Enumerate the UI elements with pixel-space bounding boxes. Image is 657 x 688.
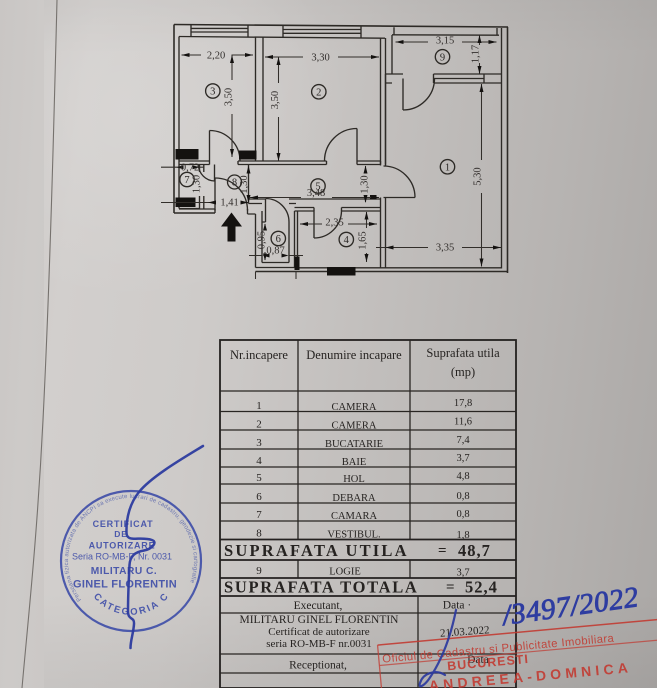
svg-text:1,30: 1,30 <box>360 175 371 193</box>
svg-text:1,17: 1,17 <box>471 45 482 63</box>
svg-text:0,72: 0,72 <box>181 163 199 174</box>
svg-text:HOL: HOL <box>343 474 365 485</box>
svg-text:2: 2 <box>316 87 321 98</box>
svg-text:17,8: 17,8 <box>454 398 472 409</box>
svg-text:0,8: 0,8 <box>456 491 469 502</box>
svg-text:SUPRAFATA UTILA: SUPRAFATA UTILA <box>224 541 409 560</box>
svg-text:4,8: 4,8 <box>456 471 469 482</box>
svg-text:Receptionat,: Receptionat, <box>289 660 347 672</box>
svg-text:0,87: 0,87 <box>266 246 284 257</box>
svg-text:9: 9 <box>256 565 262 577</box>
svg-text:Certificat de autorizare: Certificat de autorizare <box>268 626 370 638</box>
svg-text:LOGIE: LOGIE <box>329 567 361 578</box>
svg-text:seria RO-MB-F nr.0031: seria RO-MB-F nr.0031 <box>266 638 371 650</box>
svg-text:2,35: 2,35 <box>325 218 343 229</box>
svg-text:11,6: 11,6 <box>454 417 472 428</box>
svg-text:0,8: 0,8 <box>456 509 469 520</box>
svg-text:3,50: 3,50 <box>224 88 235 106</box>
svg-text:52,4: 52,4 <box>465 578 498 597</box>
svg-text:1,8: 1,8 <box>456 530 469 541</box>
svg-text:1,65: 1,65 <box>358 231 369 249</box>
svg-text:7: 7 <box>256 509 262 521</box>
svg-text:5: 5 <box>256 472 262 484</box>
svg-text:48,7: 48,7 <box>458 541 491 560</box>
svg-text:Seria RO-MB-F, Nr. 0031: Seria RO-MB-F, Nr. 0031 <box>72 552 172 562</box>
svg-text:Denumire incapare: Denumire incapare <box>306 348 402 362</box>
svg-text:=: = <box>446 580 455 596</box>
svg-text:MILITARU C.: MILITARU C. <box>91 566 157 577</box>
svg-text:CAMERA: CAMERA <box>332 421 377 432</box>
svg-text:6: 6 <box>276 234 281 245</box>
svg-text:7,4: 7,4 <box>456 435 470 446</box>
svg-text:5,30: 5,30 <box>473 167 484 185</box>
svg-text:3,7: 3,7 <box>456 453 469 464</box>
svg-text:=: = <box>438 543 447 559</box>
svg-text:1,30: 1,30 <box>192 175 203 193</box>
svg-text:3,48: 3,48 <box>307 188 325 199</box>
svg-text:4: 4 <box>256 455 262 467</box>
svg-text:Executant,: Executant, <box>294 600 343 612</box>
svg-text:3: 3 <box>256 437 262 449</box>
svg-text:/3497/2022: /3497/2022 <box>499 581 641 632</box>
svg-text:CERTIFICAT: CERTIFICAT <box>93 519 154 529</box>
svg-text:CAMERA: CAMERA <box>332 402 377 413</box>
svg-text:2,20: 2,20 <box>207 50 225 61</box>
svg-text:3,15: 3,15 <box>436 36 454 47</box>
svg-text:7: 7 <box>184 175 189 186</box>
svg-text:1: 1 <box>445 162 450 173</box>
svg-text:SUPRAFATA TOTALA: SUPRAFATA TOTALA <box>224 578 419 597</box>
svg-text:BAIE: BAIE <box>342 457 367 468</box>
svg-text:DEBARA: DEBARA <box>332 493 376 504</box>
svg-text:MILITARU GINEL FLORENTIN: MILITARU GINEL FLORENTIN <box>240 614 400 626</box>
svg-text:3,50: 3,50 <box>270 91 281 109</box>
svg-text:8: 8 <box>256 528 262 540</box>
svg-text:2: 2 <box>256 419 262 431</box>
svg-text:Suprafata utila: Suprafata utila <box>426 346 500 360</box>
svg-text:9: 9 <box>440 52 445 63</box>
svg-text:Nr.incapere: Nr.incapere <box>230 348 288 362</box>
svg-text:1: 1 <box>256 400 262 412</box>
svg-text:6: 6 <box>256 491 262 503</box>
svg-text:CAMARA: CAMARA <box>331 511 378 522</box>
svg-text:1,41: 1,41 <box>220 198 238 209</box>
svg-text:3: 3 <box>210 87 215 98</box>
svg-text:8: 8 <box>232 178 237 189</box>
svg-text:VESTIBUL.: VESTIBUL. <box>327 530 380 541</box>
svg-text:GINEL FLORENTIN: GINEL FLORENTIN <box>73 579 177 591</box>
svg-text:CATEGORIA C: CATEGORIA C <box>91 590 172 618</box>
svg-text:1,30: 1,30 <box>239 175 250 193</box>
svg-text:BUCATARIE: BUCATARIE <box>325 439 383 450</box>
svg-text:3,30: 3,30 <box>311 52 329 63</box>
svg-text:(mp): (mp) <box>451 365 475 379</box>
svg-text:3,35: 3,35 <box>436 243 454 254</box>
svg-text:4: 4 <box>344 235 350 246</box>
